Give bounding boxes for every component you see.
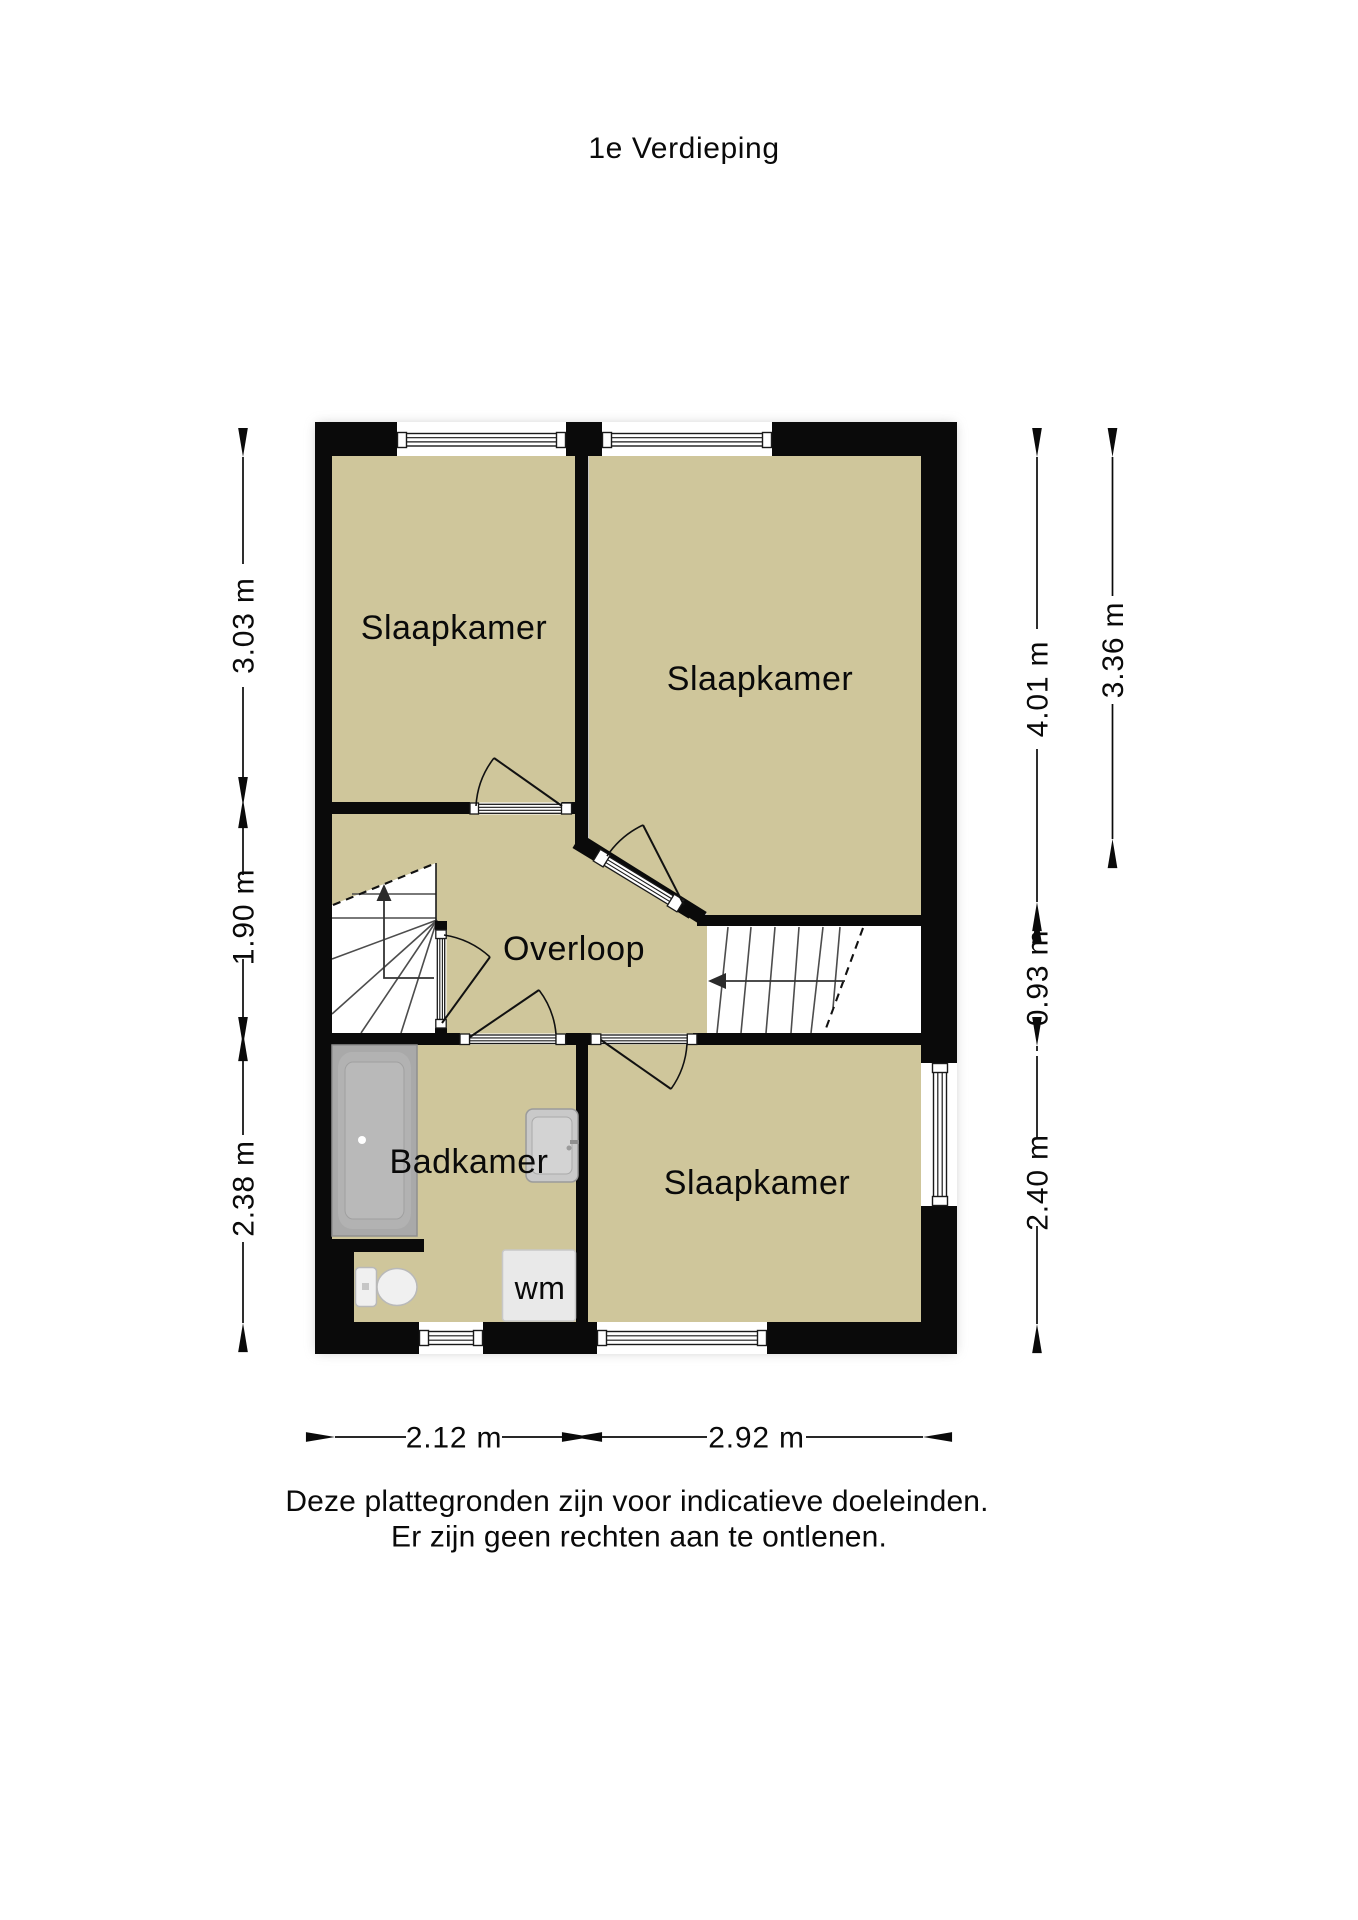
svg-text:4.01 m: 4.01 m [1022,641,1055,738]
svg-text:2.92 m: 2.92 m [708,1422,805,1455]
svg-text:Badkamer: Badkamer [390,1143,549,1181]
svg-text:2.40 m: 2.40 m [1022,1134,1055,1231]
svg-text:2.12 m: 2.12 m [406,1422,503,1455]
svg-text:Overloop: Overloop [503,930,645,968]
svg-text:3.36 m: 3.36 m [1097,602,1130,699]
svg-text:0.93 m: 0.93 m [1022,930,1055,1027]
svg-text:2.38 m: 2.38 m [228,1140,261,1237]
svg-text:Deze plattegronden zijn voor i: Deze plattegronden zijn voor indicatieve… [285,1485,988,1518]
svg-text:3.03 m: 3.03 m [228,577,261,674]
svg-text:wm: wm [514,1270,566,1306]
svg-text:Slaapkamer: Slaapkamer [664,1164,850,1202]
svg-text:Er zijn geen rechten aan te on: Er zijn geen rechten aan te ontlenen. [391,1521,887,1554]
svg-text:1.90 m: 1.90 m [228,869,261,966]
svg-text:1e Verdieping: 1e Verdieping [588,132,779,165]
svg-text:Slaapkamer: Slaapkamer [361,609,547,647]
svg-text:Slaapkamer: Slaapkamer [667,660,853,698]
